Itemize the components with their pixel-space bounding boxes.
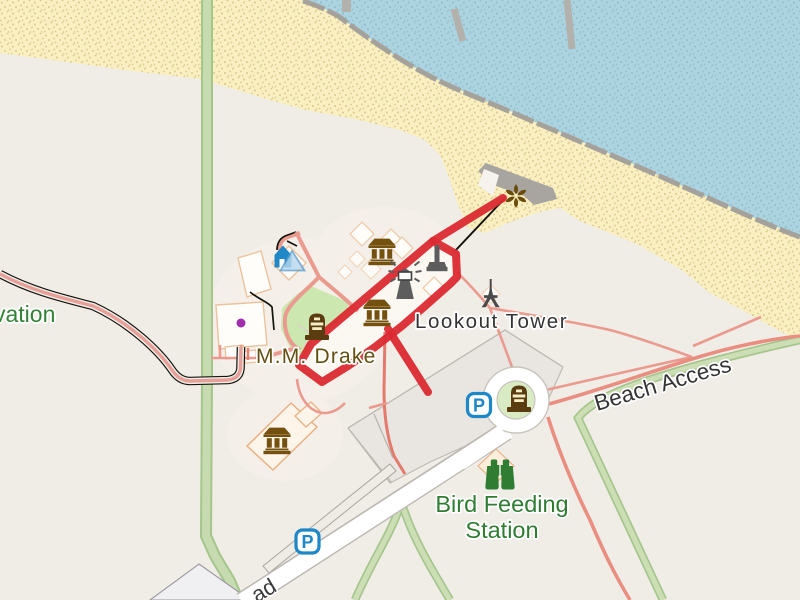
svg-text:vation: vation [0,301,55,327]
svg-text:M.M. Drake: M.M. Drake [256,345,377,368]
svg-text:Station: Station [465,517,538,543]
svg-text:Bird Feeding: Bird Feeding [435,491,568,517]
svg-text:Lookout Tower: Lookout Tower [415,310,568,333]
